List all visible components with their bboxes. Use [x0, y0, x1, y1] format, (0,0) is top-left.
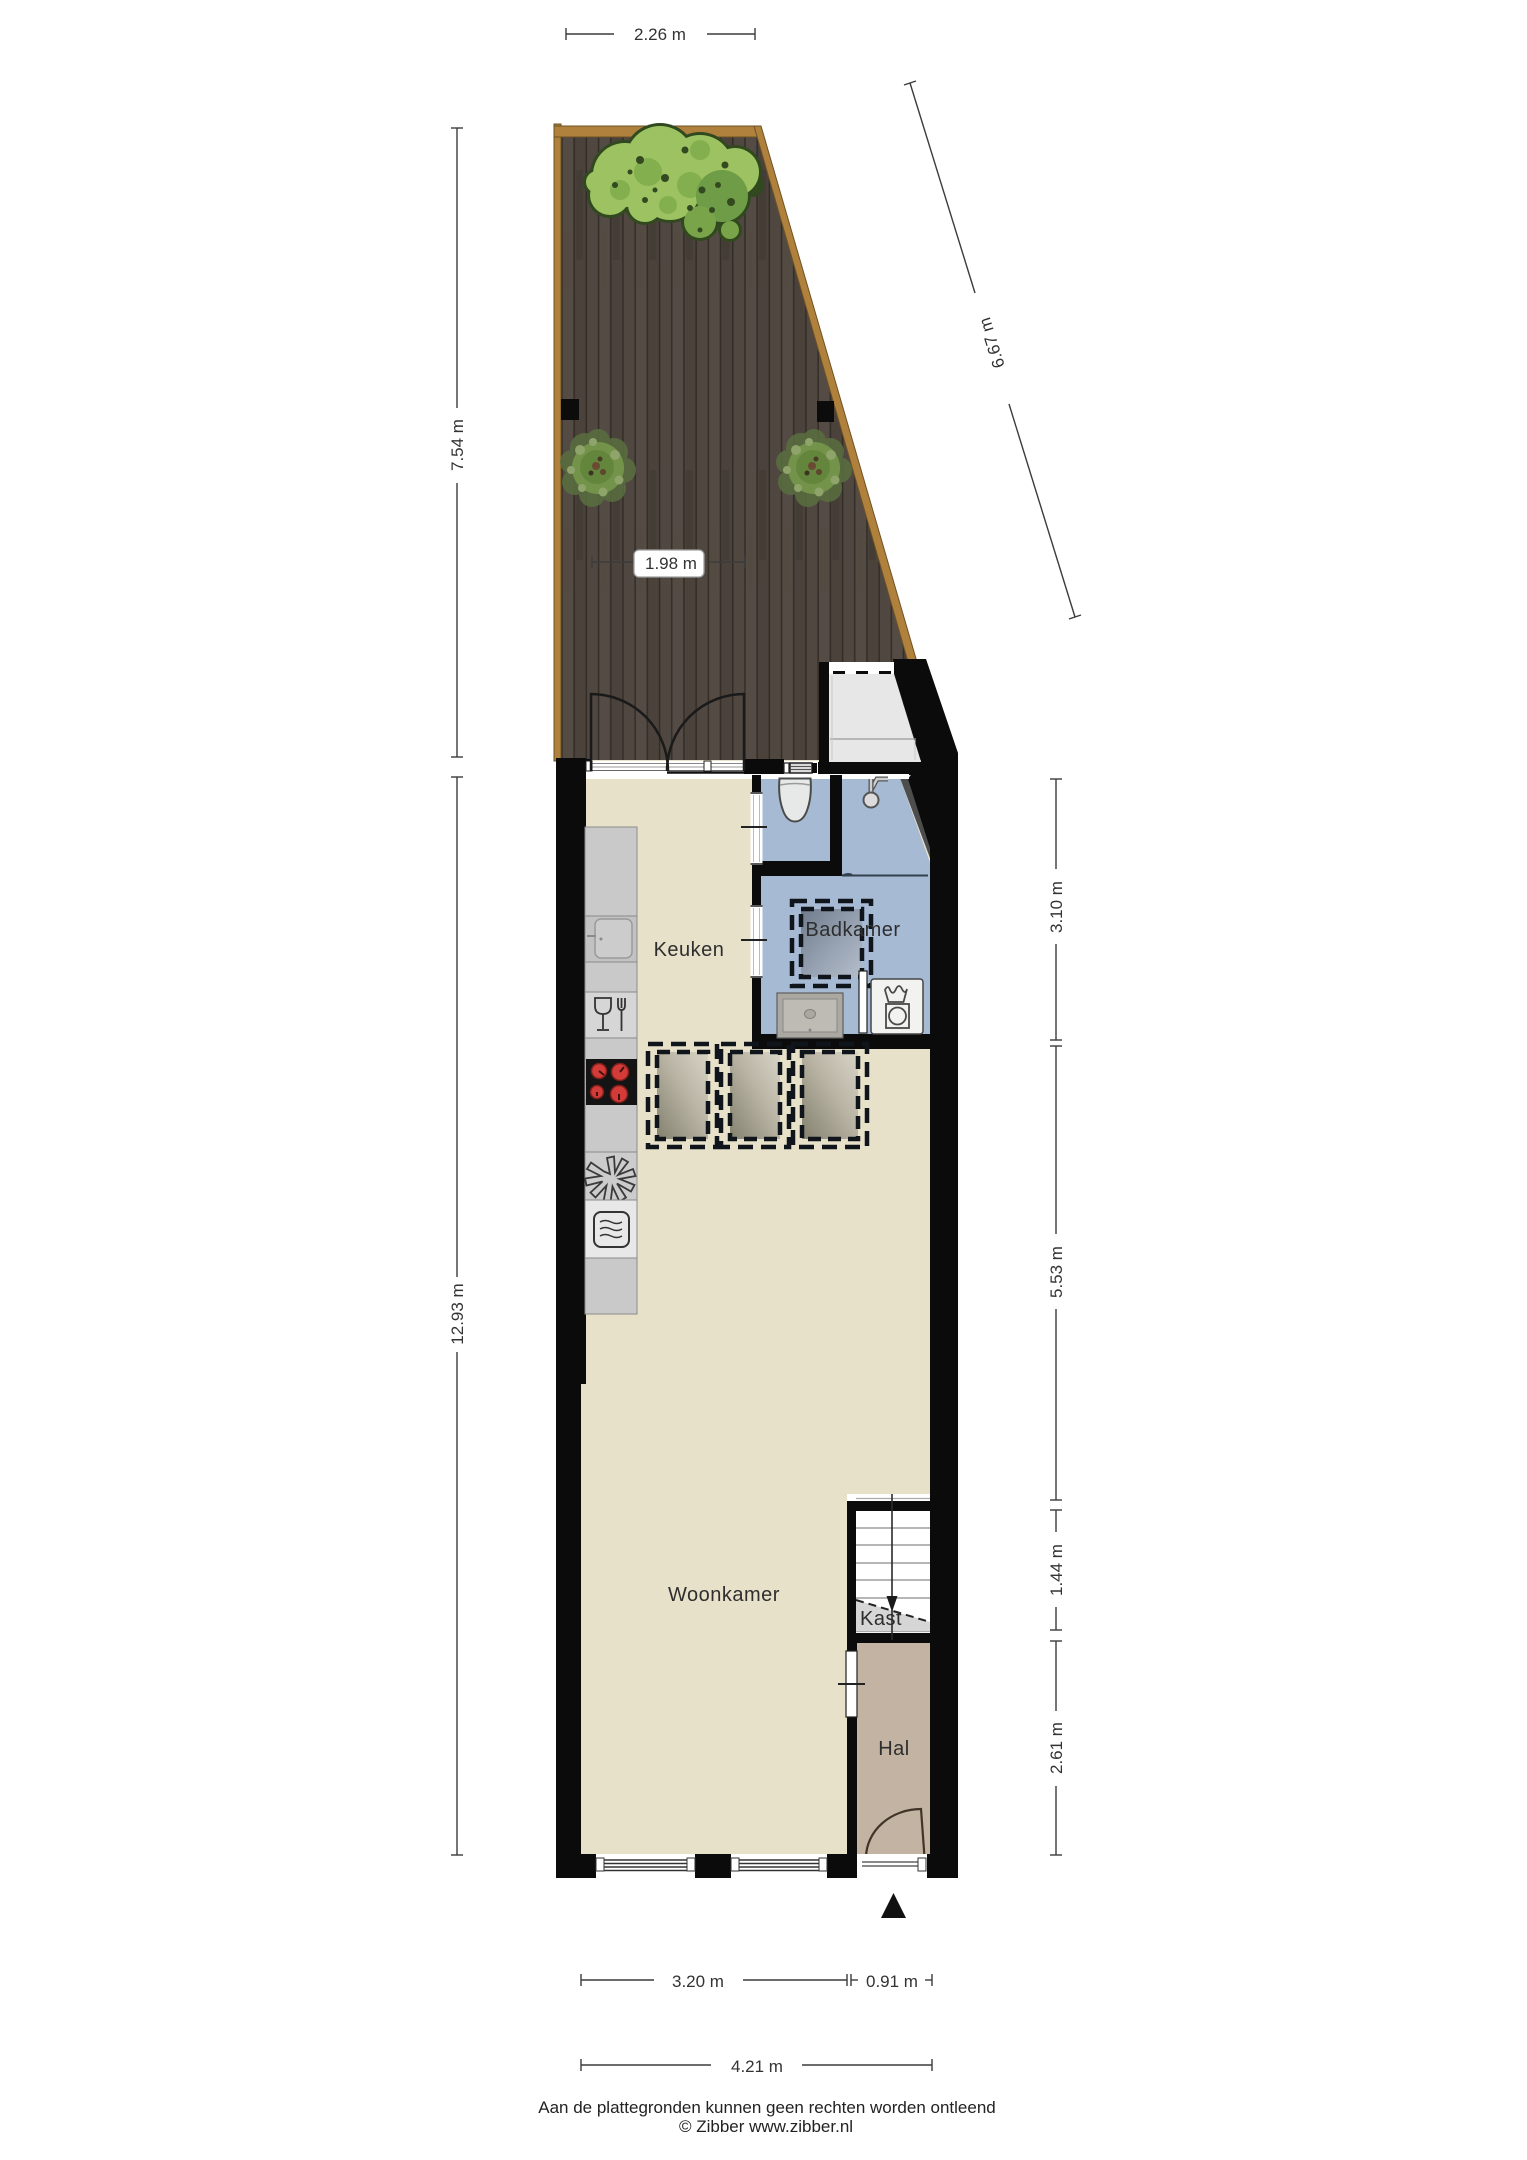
svg-text:3.20 m: 3.20 m — [672, 1972, 724, 1991]
svg-text:12.93 m: 12.93 m — [448, 1283, 467, 1344]
svg-text:2.26 m: 2.26 m — [634, 25, 686, 44]
svg-text:1.98 m: 1.98 m — [645, 554, 697, 573]
svg-text:3.10 m: 3.10 m — [1047, 881, 1066, 933]
svg-text:Kast: Kast — [860, 1608, 902, 1630]
svg-text:4.21 m: 4.21 m — [731, 2057, 783, 2076]
svg-text:Hal: Hal — [878, 1738, 910, 1760]
svg-text:Woonkamer: Woonkamer — [668, 1584, 780, 1606]
svg-text:© Zibber www.zibber.nl: © Zibber www.zibber.nl — [679, 2117, 853, 2136]
svg-text:1.44 m: 1.44 m — [1047, 1544, 1066, 1596]
svg-text:Badkamer: Badkamer — [805, 919, 900, 941]
svg-text:0.91 m: 0.91 m — [866, 1972, 918, 1991]
svg-text:7.54 m: 7.54 m — [448, 419, 467, 471]
svg-text:5.53 m: 5.53 m — [1047, 1246, 1066, 1298]
svg-text:Keuken: Keuken — [654, 939, 725, 961]
svg-text:Aan de plattegronden kunnen ge: Aan de plattegronden kunnen geen rechten… — [538, 2098, 995, 2117]
svg-text:2.61 m: 2.61 m — [1047, 1722, 1066, 1774]
